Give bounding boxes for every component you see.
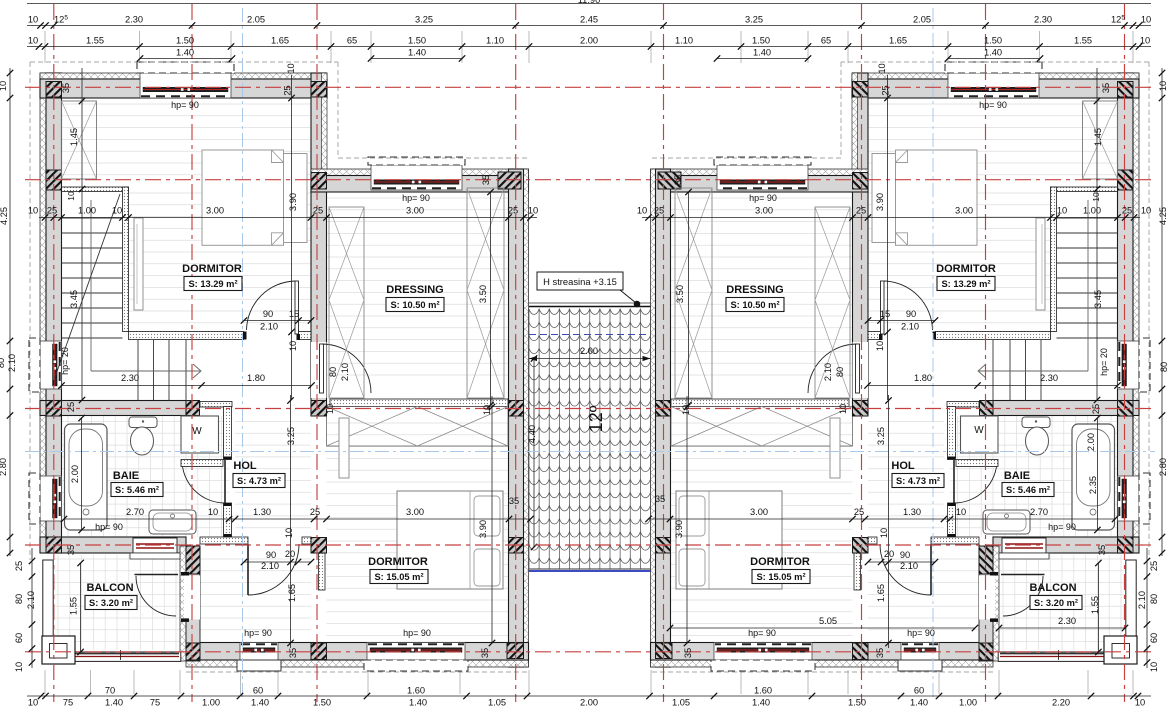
svg-text:1.80: 1.80 — [914, 373, 932, 383]
svg-text:1.45: 1.45 — [69, 128, 79, 146]
svg-text:12º: 12º — [586, 405, 606, 432]
svg-text:1.40: 1.40 — [251, 698, 269, 708]
svg-text:10: 10 — [28, 698, 38, 708]
svg-text:10: 10 — [28, 15, 38, 25]
svg-text:2.80: 2.80 — [1158, 458, 1168, 476]
svg-text:2.10: 2.10 — [901, 322, 919, 332]
svg-text:75: 75 — [63, 698, 73, 708]
svg-text:2.10: 2.10 — [261, 561, 279, 571]
svg-text:15: 15 — [880, 309, 890, 319]
svg-text:75: 75 — [150, 698, 160, 708]
svg-text:3.50: 3.50 — [675, 285, 685, 303]
svg-text:hp= 90: hp= 90 — [1048, 522, 1076, 532]
svg-text:80: 80 — [1149, 594, 1159, 604]
svg-text:2.70: 2.70 — [126, 507, 144, 517]
svg-text:hp= 90: hp= 90 — [403, 628, 431, 638]
svg-text:20: 20 — [285, 549, 295, 559]
svg-text:DRESSING: DRESSING — [386, 284, 443, 296]
svg-text:10: 10 — [28, 206, 38, 216]
svg-text:10: 10 — [879, 528, 889, 538]
svg-text:DORMITOR: DORMITOR — [936, 263, 996, 275]
svg-text:35: 35 — [1101, 83, 1111, 93]
svg-text:1.10: 1.10 — [675, 36, 693, 46]
svg-text:3.25: 3.25 — [876, 427, 886, 445]
svg-text:2.05: 2.05 — [913, 15, 931, 25]
svg-text:25: 25 — [1149, 561, 1159, 571]
svg-text:25: 25 — [310, 507, 320, 517]
svg-text:S: 10.50 m²: S: 10.50 m² — [390, 300, 439, 310]
svg-text:2.30: 2.30 — [1058, 616, 1076, 626]
svg-text:hp= 90: hp= 90 — [979, 100, 1007, 110]
svg-text:10: 10 — [112, 206, 122, 216]
svg-text:S: 5.46 m²: S: 5.46 m² — [115, 485, 159, 495]
svg-text:10: 10 — [286, 63, 296, 73]
svg-text:35: 35 — [480, 648, 490, 658]
svg-text:3.90: 3.90 — [478, 520, 488, 538]
svg-text:1.30: 1.30 — [253, 507, 271, 517]
svg-text:10: 10 — [208, 507, 218, 517]
svg-text:60: 60 — [1149, 633, 1159, 643]
svg-text:25: 25 — [508, 206, 518, 216]
svg-text:25: 25 — [881, 85, 891, 95]
svg-text:1.60: 1.60 — [407, 686, 425, 696]
svg-text:3.90: 3.90 — [674, 520, 684, 538]
svg-text:10: 10 — [1135, 698, 1145, 708]
svg-text:2.10: 2.10 — [7, 354, 17, 372]
svg-text:1.00: 1.00 — [202, 698, 220, 708]
svg-text:hp= 90: hp= 90 — [907, 628, 935, 638]
svg-text:35: 35 — [509, 496, 519, 506]
svg-text:1.80: 1.80 — [247, 373, 265, 383]
svg-text:1.40: 1.40 — [408, 48, 426, 58]
svg-text:10: 10 — [875, 341, 885, 351]
svg-text:10: 10 — [1141, 206, 1151, 216]
svg-text:3.45: 3.45 — [69, 290, 79, 308]
svg-text:3.50: 3.50 — [478, 285, 488, 303]
svg-text:35: 35 — [288, 648, 298, 658]
svg-text:1.55: 1.55 — [69, 597, 79, 615]
svg-text:hp= 20: hp= 20 — [60, 347, 70, 375]
svg-text:60: 60 — [14, 633, 24, 643]
svg-text:10: 10 — [956, 507, 966, 517]
svg-text:3.00: 3.00 — [206, 206, 224, 216]
svg-text:35: 35 — [1097, 545, 1107, 555]
svg-text:4.40: 4.40 — [527, 425, 537, 443]
svg-text:10: 10 — [0, 81, 8, 91]
svg-text:BAIE: BAIE — [1004, 470, 1030, 482]
svg-text:80: 80 — [328, 367, 338, 377]
svg-text:1.65: 1.65 — [889, 36, 907, 46]
svg-text:1.55: 1.55 — [86, 36, 104, 46]
svg-text:3.00: 3.00 — [406, 507, 424, 517]
svg-text:10: 10 — [838, 404, 848, 414]
svg-text:BAIE: BAIE — [113, 470, 139, 482]
svg-text:3.25: 3.25 — [286, 427, 296, 445]
svg-text:25: 25 — [1091, 404, 1101, 414]
svg-text:25: 25 — [1122, 206, 1132, 216]
svg-text:2.10: 2.10 — [260, 322, 278, 332]
svg-text:3.45: 3.45 — [1093, 290, 1103, 308]
svg-text:1.40: 1.40 — [753, 48, 771, 58]
svg-text:10: 10 — [681, 405, 691, 415]
svg-text:80: 80 — [0, 358, 6, 368]
svg-text:10: 10 — [288, 341, 298, 351]
svg-text:1.50: 1.50 — [752, 36, 770, 46]
svg-text:10: 10 — [1091, 192, 1101, 202]
svg-text:1.50: 1.50 — [408, 36, 426, 46]
svg-text:S: 10.50 m²: S: 10.50 m² — [730, 300, 779, 310]
svg-text:3.90: 3.90 — [875, 193, 885, 211]
svg-text:60: 60 — [914, 686, 924, 696]
svg-text:5.05: 5.05 — [819, 616, 837, 626]
svg-text:S: 3.20 m²: S: 3.20 m² — [1034, 598, 1078, 608]
svg-text:DRESSING: DRESSING — [726, 284, 783, 296]
svg-text:3.00: 3.00 — [406, 206, 424, 216]
svg-text:35: 35 — [61, 83, 71, 93]
svg-text:3.90: 3.90 — [288, 193, 298, 211]
svg-text:HOL: HOL — [891, 460, 915, 472]
svg-text:S: 15.05 m²: S: 15.05 m² — [756, 572, 805, 582]
svg-text:10: 10 — [1140, 36, 1150, 46]
svg-text:1.40: 1.40 — [752, 698, 770, 708]
svg-text:1.10: 1.10 — [486, 36, 504, 46]
svg-text:1.40: 1.40 — [910, 698, 928, 708]
svg-text:S: 4.73 m²: S: 4.73 m² — [237, 476, 281, 486]
svg-text:DORMITOR: DORMITOR — [750, 556, 810, 568]
svg-text:1.55: 1.55 — [1090, 596, 1100, 614]
svg-text:1.00: 1.00 — [959, 698, 977, 708]
svg-text:90: 90 — [266, 550, 276, 560]
svg-text:10: 10 — [528, 206, 538, 216]
svg-text:BALCON: BALCON — [1029, 582, 1076, 594]
svg-text:25: 25 — [654, 206, 664, 216]
svg-text:10: 10 — [1158, 81, 1168, 91]
svg-text:1.50: 1.50 — [848, 698, 866, 708]
svg-text:15: 15 — [289, 309, 299, 319]
svg-text:10: 10 — [877, 63, 887, 73]
svg-text:1.65: 1.65 — [876, 584, 886, 602]
svg-text:3.00: 3.00 — [955, 206, 973, 216]
svg-text:10: 10 — [1141, 15, 1151, 25]
svg-text:BALCON: BALCON — [86, 582, 133, 594]
svg-text:25: 25 — [14, 561, 24, 571]
svg-text:hp= 20: hp= 20 — [1099, 348, 1109, 376]
svg-text:20: 20 — [884, 549, 894, 559]
svg-text:10: 10 — [284, 528, 294, 538]
svg-text:1.55: 1.55 — [1074, 36, 1092, 46]
svg-text:2.30: 2.30 — [125, 15, 143, 25]
svg-text:2.00: 2.00 — [1086, 433, 1096, 451]
svg-text:S: 4.73 m²: S: 4.73 m² — [896, 476, 940, 486]
svg-text:3.25: 3.25 — [745, 15, 763, 25]
svg-text:1.50: 1.50 — [984, 36, 1002, 46]
svg-text:DORMITOR: DORMITOR — [368, 556, 428, 568]
svg-text:65: 65 — [821, 36, 831, 46]
svg-text:2.20: 2.20 — [1052, 698, 1070, 708]
svg-text:1.30: 1.30 — [903, 507, 921, 517]
svg-text:35: 35 — [66, 545, 76, 555]
svg-text:1.00: 1.00 — [78, 206, 96, 216]
svg-text:25: 25 — [856, 206, 866, 216]
svg-text:1.65: 1.65 — [287, 584, 297, 602]
svg-text:2.05: 2.05 — [247, 15, 265, 25]
svg-text:10: 10 — [325, 404, 335, 414]
svg-text:25: 25 — [313, 206, 323, 216]
svg-text:90: 90 — [906, 309, 916, 319]
svg-text:S: 13.29 m²: S: 13.29 m² — [188, 279, 237, 289]
svg-text:2.30: 2.30 — [1040, 373, 1058, 383]
svg-text:11.90: 11.90 — [578, 0, 601, 5]
svg-text:65: 65 — [347, 36, 357, 46]
svg-text:S: 15.05 m²: S: 15.05 m² — [374, 572, 423, 582]
svg-text:25: 25 — [283, 85, 293, 95]
svg-text:HOL: HOL — [233, 460, 257, 472]
svg-text:1.50: 1.50 — [176, 36, 194, 46]
svg-text:1.60: 1.60 — [754, 686, 772, 696]
svg-text:1.05: 1.05 — [488, 698, 506, 708]
svg-text:hp= 90: hp= 90 — [402, 193, 430, 203]
svg-text:1.45: 1.45 — [1093, 128, 1103, 146]
svg-text:2.10: 2.10 — [1137, 591, 1147, 609]
svg-text:hp= 90: hp= 90 — [749, 193, 777, 203]
svg-text:2.00: 2.00 — [580, 698, 598, 708]
svg-text:H streasina +3.15: H streasina +3.15 — [543, 276, 617, 287]
svg-text:1.40: 1.40 — [409, 698, 427, 708]
svg-text:3.25: 3.25 — [415, 15, 433, 25]
svg-text:2.10: 2.10 — [26, 591, 36, 609]
svg-text:DORMITOR: DORMITOR — [182, 263, 242, 275]
svg-text:35: 35 — [655, 494, 665, 504]
svg-text:10: 10 — [482, 405, 492, 415]
svg-text:2.00: 2.00 — [580, 346, 598, 356]
svg-text:1.50: 1.50 — [313, 698, 331, 708]
svg-text:70: 70 — [105, 686, 115, 696]
svg-text:35: 35 — [481, 175, 491, 185]
svg-text:4.25: 4.25 — [0, 207, 9, 225]
svg-text:35: 35 — [673, 175, 683, 185]
svg-text:1.40: 1.40 — [984, 48, 1002, 58]
svg-text:90: 90 — [263, 309, 273, 319]
svg-text:2.45: 2.45 — [580, 15, 598, 25]
svg-text:35: 35 — [875, 648, 885, 658]
svg-text:2.30: 2.30 — [121, 373, 139, 383]
svg-text:S: 3.20 m²: S: 3.20 m² — [89, 598, 133, 608]
svg-text:1.40: 1.40 — [176, 48, 194, 58]
svg-text:25: 25 — [854, 507, 864, 517]
svg-text:2.70: 2.70 — [1030, 507, 1048, 517]
svg-text:2.00: 2.00 — [70, 465, 80, 483]
svg-text:1.05: 1.05 — [672, 698, 690, 708]
svg-text:10: 10 — [28, 36, 38, 46]
svg-text:3.00: 3.00 — [750, 507, 768, 517]
svg-text:25: 25 — [47, 206, 57, 216]
svg-text:80: 80 — [14, 594, 24, 604]
svg-text:2.80: 2.80 — [0, 458, 8, 476]
svg-text:90: 90 — [900, 550, 910, 560]
svg-text:80: 80 — [1159, 362, 1169, 372]
svg-text:10: 10 — [14, 662, 24, 672]
svg-text:2.35: 2.35 — [1088, 476, 1098, 494]
svg-text:10: 10 — [1149, 662, 1159, 672]
svg-text:hp= 90: hp= 90 — [95, 522, 123, 532]
svg-text:1.40: 1.40 — [105, 698, 123, 708]
svg-text:35: 35 — [683, 648, 693, 658]
svg-text:10: 10 — [1057, 206, 1067, 216]
svg-text:W: W — [974, 425, 984, 436]
svg-text:10: 10 — [66, 191, 76, 201]
svg-text:2.10: 2.10 — [823, 363, 833, 381]
svg-text:4.25: 4.25 — [1158, 207, 1168, 225]
svg-text:hp= 90: hp= 90 — [244, 628, 272, 638]
svg-text:1.65: 1.65 — [271, 36, 289, 46]
svg-text:1.00: 1.00 — [1083, 206, 1101, 216]
svg-text:2.10: 2.10 — [900, 561, 918, 571]
svg-text:25: 25 — [66, 402, 76, 412]
svg-text:hp= 90: hp= 90 — [748, 628, 776, 638]
svg-text:W: W — [192, 426, 202, 437]
svg-text:S: 13.29 m²: S: 13.29 m² — [941, 279, 990, 289]
svg-text:2.00: 2.00 — [580, 36, 598, 46]
svg-text:hp= 90: hp= 90 — [171, 100, 199, 110]
svg-text:60: 60 — [253, 686, 263, 696]
svg-text:10: 10 — [637, 206, 647, 216]
svg-text:2.10: 2.10 — [340, 363, 350, 381]
svg-text:3.00: 3.00 — [755, 206, 773, 216]
svg-text:2.30: 2.30 — [1034, 15, 1052, 25]
svg-text:S: 5.46 m²: S: 5.46 m² — [1006, 485, 1050, 495]
svg-text:80: 80 — [835, 367, 845, 377]
